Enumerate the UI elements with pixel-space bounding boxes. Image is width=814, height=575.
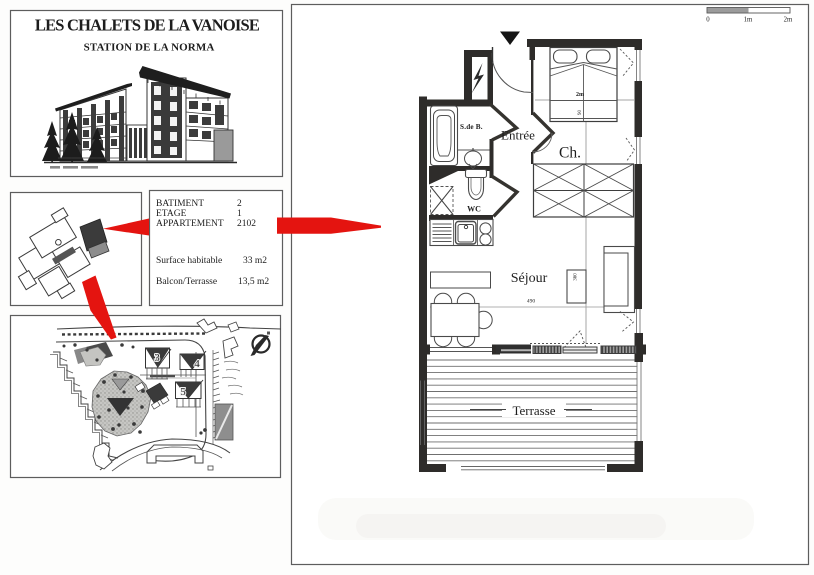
svg-text:1m: 1m xyxy=(744,17,753,24)
svg-text:2m: 2m xyxy=(784,17,793,24)
svg-text:2m: 2m xyxy=(576,92,584,98)
svg-text:2102: 2102 xyxy=(237,219,256,229)
svg-text:Balcon/Terrasse: Balcon/Terrasse xyxy=(156,277,217,287)
svg-text:LES CHALETS DE LA VANOISE: LES CHALETS DE LA VANOISE xyxy=(35,16,260,35)
svg-text:0: 0 xyxy=(706,17,710,24)
svg-text:Entrée: Entrée xyxy=(501,128,535,143)
svg-text:490: 490 xyxy=(527,299,536,305)
svg-text:Ch.: Ch. xyxy=(559,145,581,162)
svg-text:Terrasse: Terrasse xyxy=(512,403,555,418)
svg-text:3: 3 xyxy=(154,352,160,364)
svg-text:Séjour: Séjour xyxy=(511,271,548,286)
svg-text:ETAGE: ETAGE xyxy=(156,209,187,219)
svg-text:1: 1 xyxy=(237,209,242,219)
svg-text:5: 5 xyxy=(180,386,186,398)
svg-text:90: 90 xyxy=(578,110,583,116)
svg-text:4: 4 xyxy=(194,358,200,370)
svg-text:S.de B.: S.de B. xyxy=(460,123,483,131)
svg-text:13,5 m2: 13,5 m2 xyxy=(238,277,269,287)
svg-text:Surface habitable: Surface habitable xyxy=(156,255,222,266)
svg-text:STATION DE LA NORMA: STATION DE LA NORMA xyxy=(84,42,215,54)
svg-text:33 m2: 33 m2 xyxy=(243,256,267,266)
svg-text:WC: WC xyxy=(467,205,481,214)
svg-text:APPARTEMENT: APPARTEMENT xyxy=(156,219,224,229)
svg-text:2: 2 xyxy=(237,199,242,209)
svg-text:BATIMENT: BATIMENT xyxy=(156,199,204,209)
svg-text:360: 360 xyxy=(574,273,579,281)
